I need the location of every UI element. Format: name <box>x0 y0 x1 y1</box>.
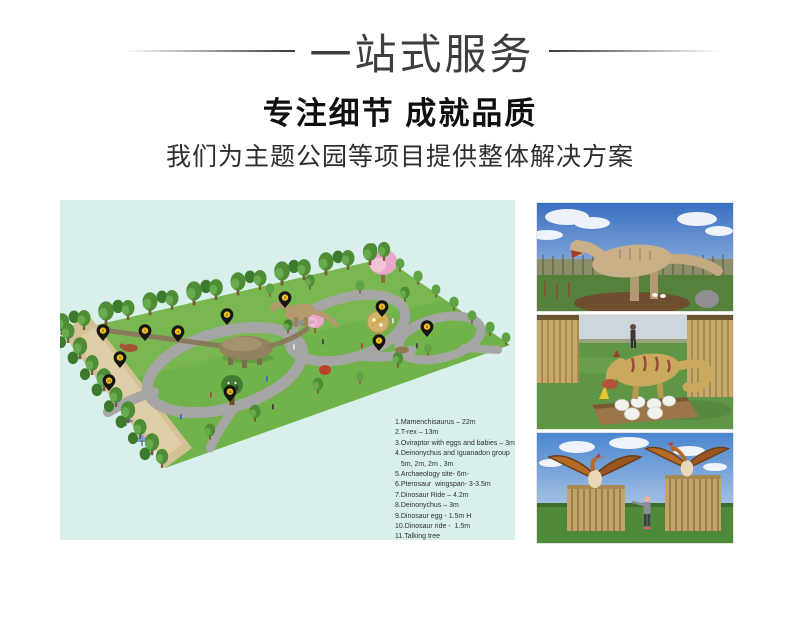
banner-line-left <box>123 50 295 52</box>
svg-text:3: 3 <box>381 305 383 309</box>
banner: 一站式服务 <box>22 26 800 76</box>
oviraptor-nest <box>367 311 389 333</box>
legend-line: 3.Oviraptor with eggs and babies – 3m <box>395 439 525 449</box>
svg-text:11: 11 <box>228 390 232 394</box>
pole-fence-left <box>567 485 625 531</box>
legend-line: 11.Talking tree <box>395 532 525 542</box>
svg-text:5: 5 <box>102 329 104 333</box>
svg-text:8: 8 <box>226 313 228 317</box>
legend-line: 5m, 2m, 2m , 3m <box>395 460 525 470</box>
legend-line: 10.Dinosaur ride - 1.5m <box>395 522 525 532</box>
legend-line: 6.Pterosaur wingspan- 3-3.5m <box>395 480 525 490</box>
legend-line: 5.Archaeology site- 6m- <box>395 470 525 480</box>
pole-wall-left <box>537 315 579 383</box>
legend-line: 8.Deinonychus – 3m <box>395 501 525 511</box>
svg-text:7: 7 <box>378 339 380 343</box>
svg-text:6: 6 <box>426 325 428 329</box>
svg-text:9: 9 <box>119 356 121 360</box>
svg-text:2: 2 <box>284 296 286 300</box>
legend-line: 9.Dinosaur egg - 1.5m H <box>395 512 525 522</box>
svg-text:10: 10 <box>107 379 111 383</box>
photo-pterosaur-models <box>537 433 733 543</box>
park-plan-image: 1234567891011 1.Mamenchisaurus – 22m2.T-… <box>60 200 515 540</box>
main-heading: 专注细节 成就品质 <box>0 88 800 133</box>
photo-oviraptor-eggs <box>537 315 733 429</box>
legend-line: 1.Mamenchisaurus – 22m <box>395 418 525 428</box>
sub-heading: 我们为主题公园等项目提供整体解决方案 <box>0 137 800 173</box>
red-bush <box>319 365 331 375</box>
svg-text:1: 1 <box>144 329 146 333</box>
plan-legend: 1.Mamenchisaurus – 22m2.T-rex – 13m3.Ovi… <box>395 418 525 543</box>
legend-line: 4.Deinonychus and Iguanadon group <box>395 449 525 459</box>
rock <box>695 290 719 308</box>
legend-line: 2.T-rex – 13m <box>395 428 525 438</box>
svg-text:4: 4 <box>177 330 179 334</box>
pole-fence-right <box>665 475 721 531</box>
banner-line-right <box>549 50 721 52</box>
banner-title: 一站式服务 <box>309 21 534 82</box>
photo-column <box>537 203 733 547</box>
legend-line: 7.Dinosaur Ride – 4.2m <box>395 491 525 501</box>
photo-trex-model <box>537 203 733 311</box>
